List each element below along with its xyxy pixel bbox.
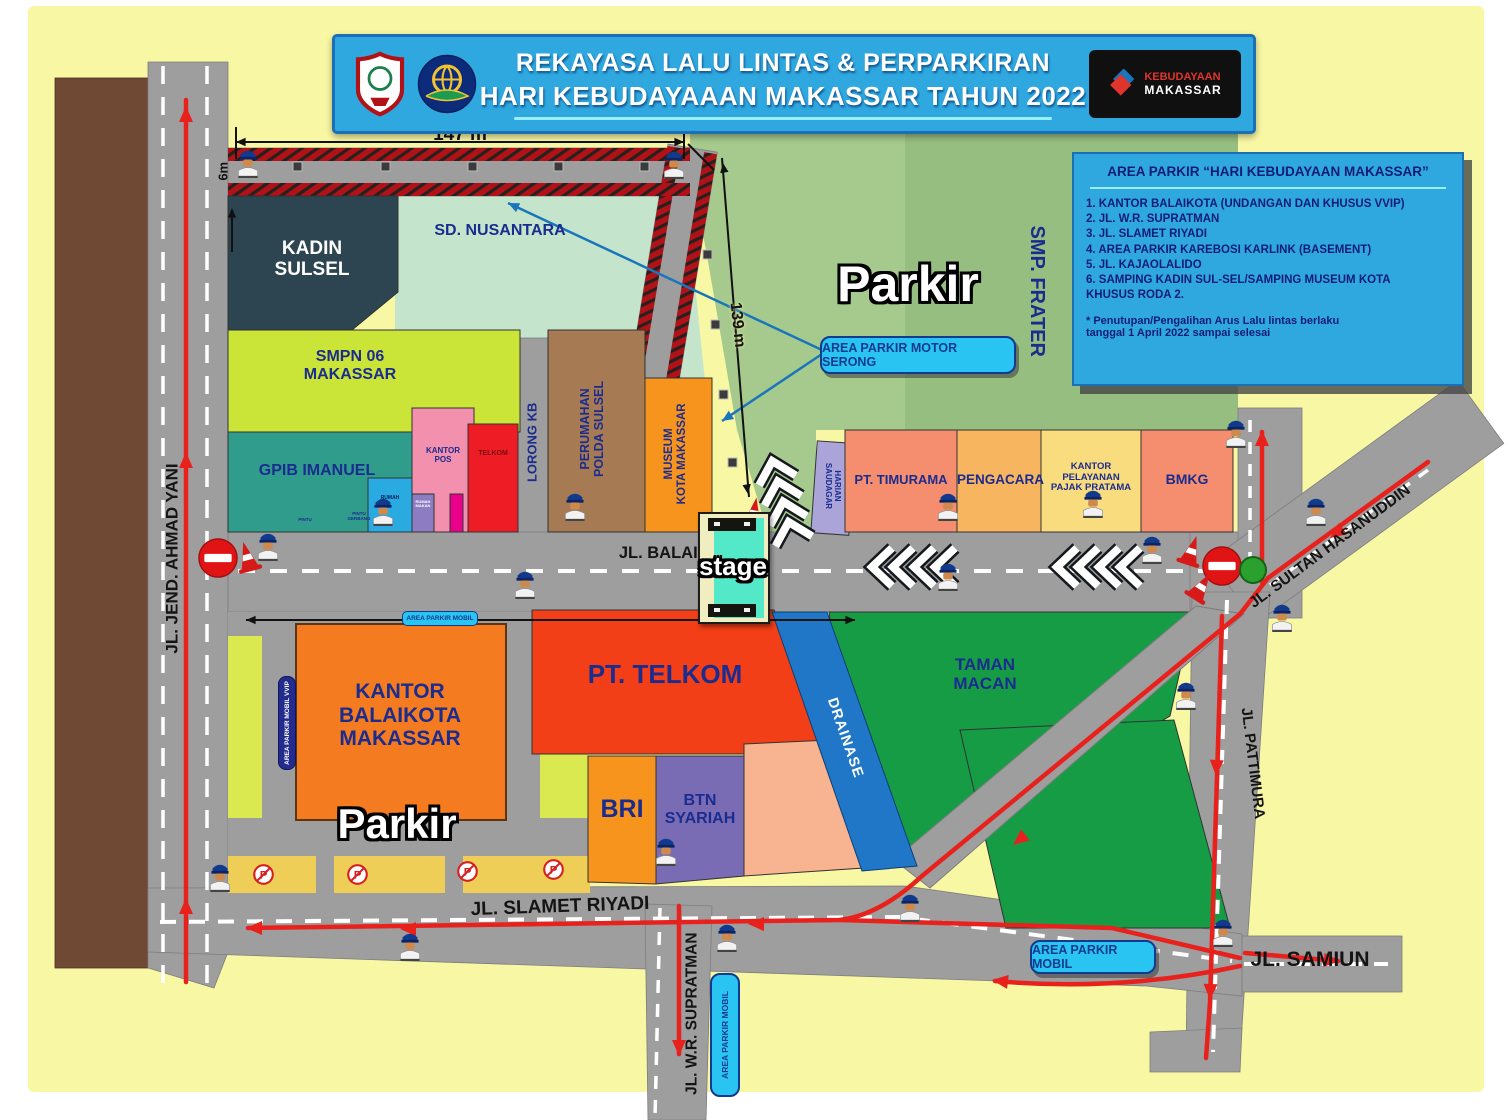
no-parking-sign-icon bbox=[544, 860, 563, 879]
banner-titles: REKAYASA LALU LINTAS & PERPARKIRAN HARI … bbox=[477, 49, 1089, 120]
badge-line2: MAKASSAR bbox=[1144, 83, 1221, 97]
parking-marker-icon bbox=[703, 250, 712, 259]
no-entry-sign-icon bbox=[199, 539, 237, 577]
label-area-parkir-mobil-vertical: AREA PARKIR MOBIL bbox=[710, 973, 740, 1097]
city-block-brown bbox=[55, 78, 148, 968]
building-label-museum: MUSEUM KOTA MAKASSAR bbox=[663, 389, 689, 519]
kebudayaan-makassar-logo: KEBUDAYAAN MAKASSAR bbox=[1089, 50, 1241, 118]
info-item-6: 6. SAMPING KADIN SUL-SEL/SAMPING MUSEUM … bbox=[1086, 273, 1450, 303]
badge-line1: KEBUDAYAAN bbox=[1144, 71, 1221, 83]
building-label-kantor-balaikota: KANTOR BALAIKOTA MAKASSAR bbox=[300, 680, 500, 751]
parking-marker-icon bbox=[468, 162, 477, 171]
green-light-icon bbox=[1240, 557, 1266, 583]
building-label-pt-timurama: PT. TIMURAMA bbox=[845, 473, 957, 488]
info-item-3: 3. JL. SLAMET RIYADI bbox=[1086, 227, 1450, 242]
chevron-arrows-icon bbox=[1057, 548, 1140, 586]
info-box-footnote: * Penutupan/Pengalihan Arus Lalu lintas … bbox=[1086, 315, 1450, 339]
parking-marker-icon bbox=[719, 390, 728, 399]
building-label-harian-saudagar: HARIAN SAUDAGAR bbox=[823, 456, 841, 516]
street-label-ahmad-yani: JL. JEND. AHMAD YANI bbox=[162, 444, 181, 674]
dimension-6m: 6m bbox=[217, 151, 232, 191]
no-parking-sign-icon bbox=[348, 865, 367, 884]
label-pintu-gerbang: PINTU GERBANG bbox=[342, 511, 376, 521]
parking-info-box: AREA PARKIR “HARI KEBUDAYAAN MAKASSAR” 1… bbox=[1072, 152, 1464, 386]
route-arrowhead bbox=[674, 138, 684, 146]
label-parkir-south: Parkir bbox=[322, 800, 472, 847]
route-arrowhead bbox=[236, 138, 246, 146]
building-label-rumah: RUMAH bbox=[369, 496, 411, 502]
no-entry-sign-icon bbox=[1203, 547, 1241, 585]
street-label-wr-supratman: JL. W.R. SUPRATMAN bbox=[683, 914, 700, 1114]
no-parking-sign-icon bbox=[458, 862, 477, 881]
title-banner: REKAYASA LALU LINTAS & PERPARKIRAN HARI … bbox=[332, 34, 1256, 134]
info-item-2: 2. JL. W.R. SUPRATMAN bbox=[1086, 212, 1450, 227]
building-label-bri: BRI bbox=[588, 795, 656, 823]
transport-ministry-logo-icon bbox=[417, 54, 477, 114]
no-parking-sign-icon bbox=[254, 865, 273, 884]
kebudayaan-diamond-icon bbox=[1108, 69, 1138, 99]
callout-area-parkir-motor-serong: AREA PARKIR MOTOR SERONG bbox=[820, 336, 1016, 374]
building-label-sd-nusantara: SD. NUSANTARA bbox=[400, 222, 600, 240]
building-label-btn: BTN SYARIAH bbox=[656, 792, 744, 828]
info-item-4: 4. AREA PARKIR KAREBOSI KARLINK (BASEMEN… bbox=[1086, 243, 1450, 258]
label-pintu: PINTU bbox=[290, 517, 320, 522]
building-label-kantor-pos: KANTOR POS bbox=[414, 447, 472, 465]
building-label-pt-telkom: PT. TELKOM bbox=[560, 660, 770, 689]
route-arrowhead bbox=[743, 484, 753, 495]
banner-underline bbox=[514, 117, 1053, 120]
building-label-telkom-small: TELKOM bbox=[468, 450, 518, 458]
building-label-bmkg: BMKG bbox=[1141, 472, 1233, 488]
info-box-divider bbox=[1090, 187, 1446, 189]
building-label-smpn: SMPN 06 MAKASSAR bbox=[250, 348, 450, 384]
parking-marker-icon bbox=[381, 162, 390, 171]
parking-marker-icon bbox=[293, 162, 302, 171]
parking-marker-icon bbox=[640, 162, 649, 171]
building-label-smp-frater: SMP. FRATER bbox=[1026, 216, 1048, 366]
parking-marker-icon bbox=[554, 162, 563, 171]
building-label-gpib: GPIB IMANUEL bbox=[232, 462, 402, 480]
info-item-1: 1. KANTOR BALAIKOTA (UNDANGAN DAN KHUSUS… bbox=[1086, 197, 1450, 212]
building-telkom-small bbox=[468, 424, 518, 532]
building-label-kadin: KADIN SULSEL bbox=[232, 238, 392, 281]
parking-marker-icon bbox=[711, 320, 720, 329]
label-area-parkir-mobil-southeast: AREA PARKIR MOBIL bbox=[1030, 940, 1156, 974]
park-label-taman-macan: TAMAN MACAN bbox=[905, 655, 1065, 693]
traffic-parking-map-page: P bbox=[0, 0, 1511, 1120]
banner-title-line1: REKAYASA LALU LINTAS & PERPARKIRAN bbox=[477, 49, 1089, 78]
label-area-parkir-mobil-vertical-text: AREA PARKIR MOBIL bbox=[720, 991, 730, 1079]
banner-title-line2: HARI KEBUDAYAAAN MAKASSAR TAHUN 2022 bbox=[477, 81, 1089, 112]
building-label-rumah-makan: RUMAH MAKAN bbox=[412, 500, 434, 509]
info-item-5: 5. JL. KAJAOLALIDO bbox=[1086, 258, 1450, 273]
street-label-samiun: JL. SAMIUN bbox=[1240, 948, 1380, 972]
label-area-parkir-mobil-vvip: AREA PARKIR MOBIL VVIP bbox=[278, 676, 296, 770]
makassar-city-crest-icon bbox=[349, 51, 411, 117]
label-stage: stage bbox=[688, 552, 778, 581]
stage-speaker-bottom-icon bbox=[708, 604, 756, 617]
building-label-pajak: KANTOR PELAYANAN PAJAK PRATAMA bbox=[1041, 462, 1141, 494]
label-parkir-north: Parkir bbox=[828, 256, 988, 312]
parking-marker-icon bbox=[728, 458, 737, 467]
street-label-lorong-kb: LORONG KB bbox=[526, 387, 541, 497]
stage-speaker-top-icon bbox=[708, 518, 756, 531]
traffic-officer-icon bbox=[1272, 605, 1291, 632]
label-area-parkir-mobil-top: AREA PARKIR MOBIL bbox=[402, 611, 478, 626]
building-label-perumahan: PERUMAHAN POLDA SULSEL bbox=[578, 369, 606, 489]
building-label-pengacara: PENGACARA bbox=[957, 472, 1041, 487]
info-box-title: AREA PARKIR “HARI KEBUDAYAAN MAKASSAR” bbox=[1086, 164, 1450, 179]
